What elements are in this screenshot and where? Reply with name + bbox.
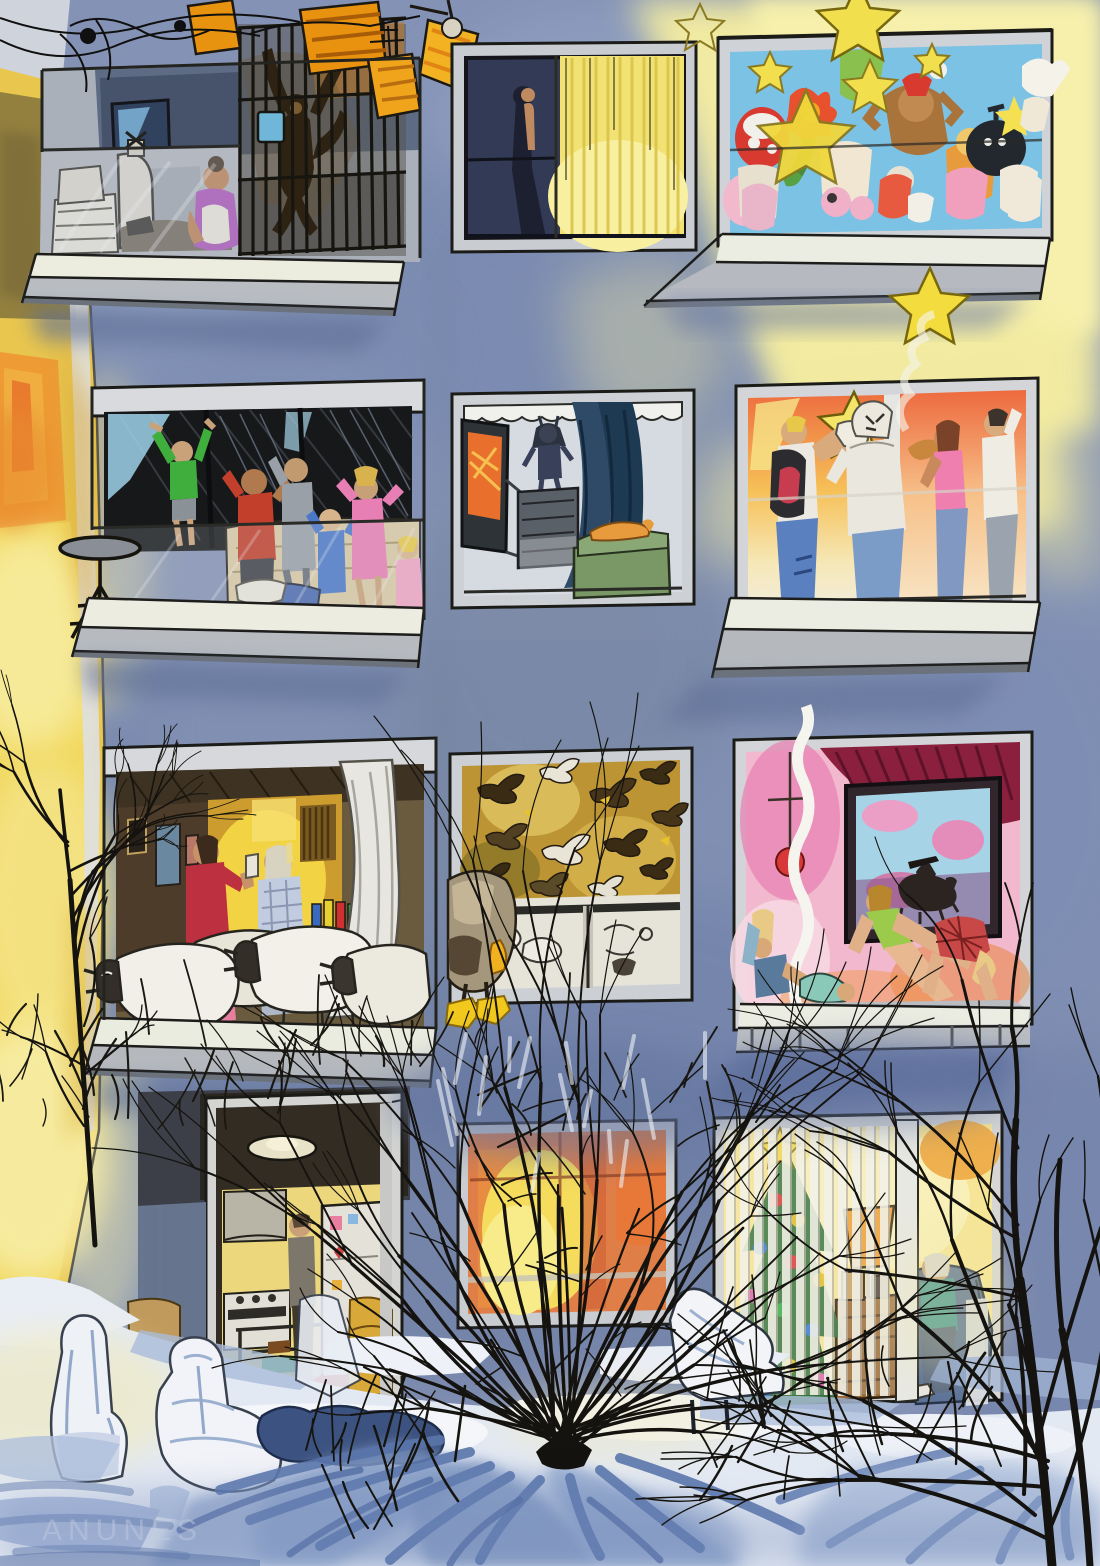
svg-text:ANUNES: ANUNES	[42, 1514, 203, 1547]
